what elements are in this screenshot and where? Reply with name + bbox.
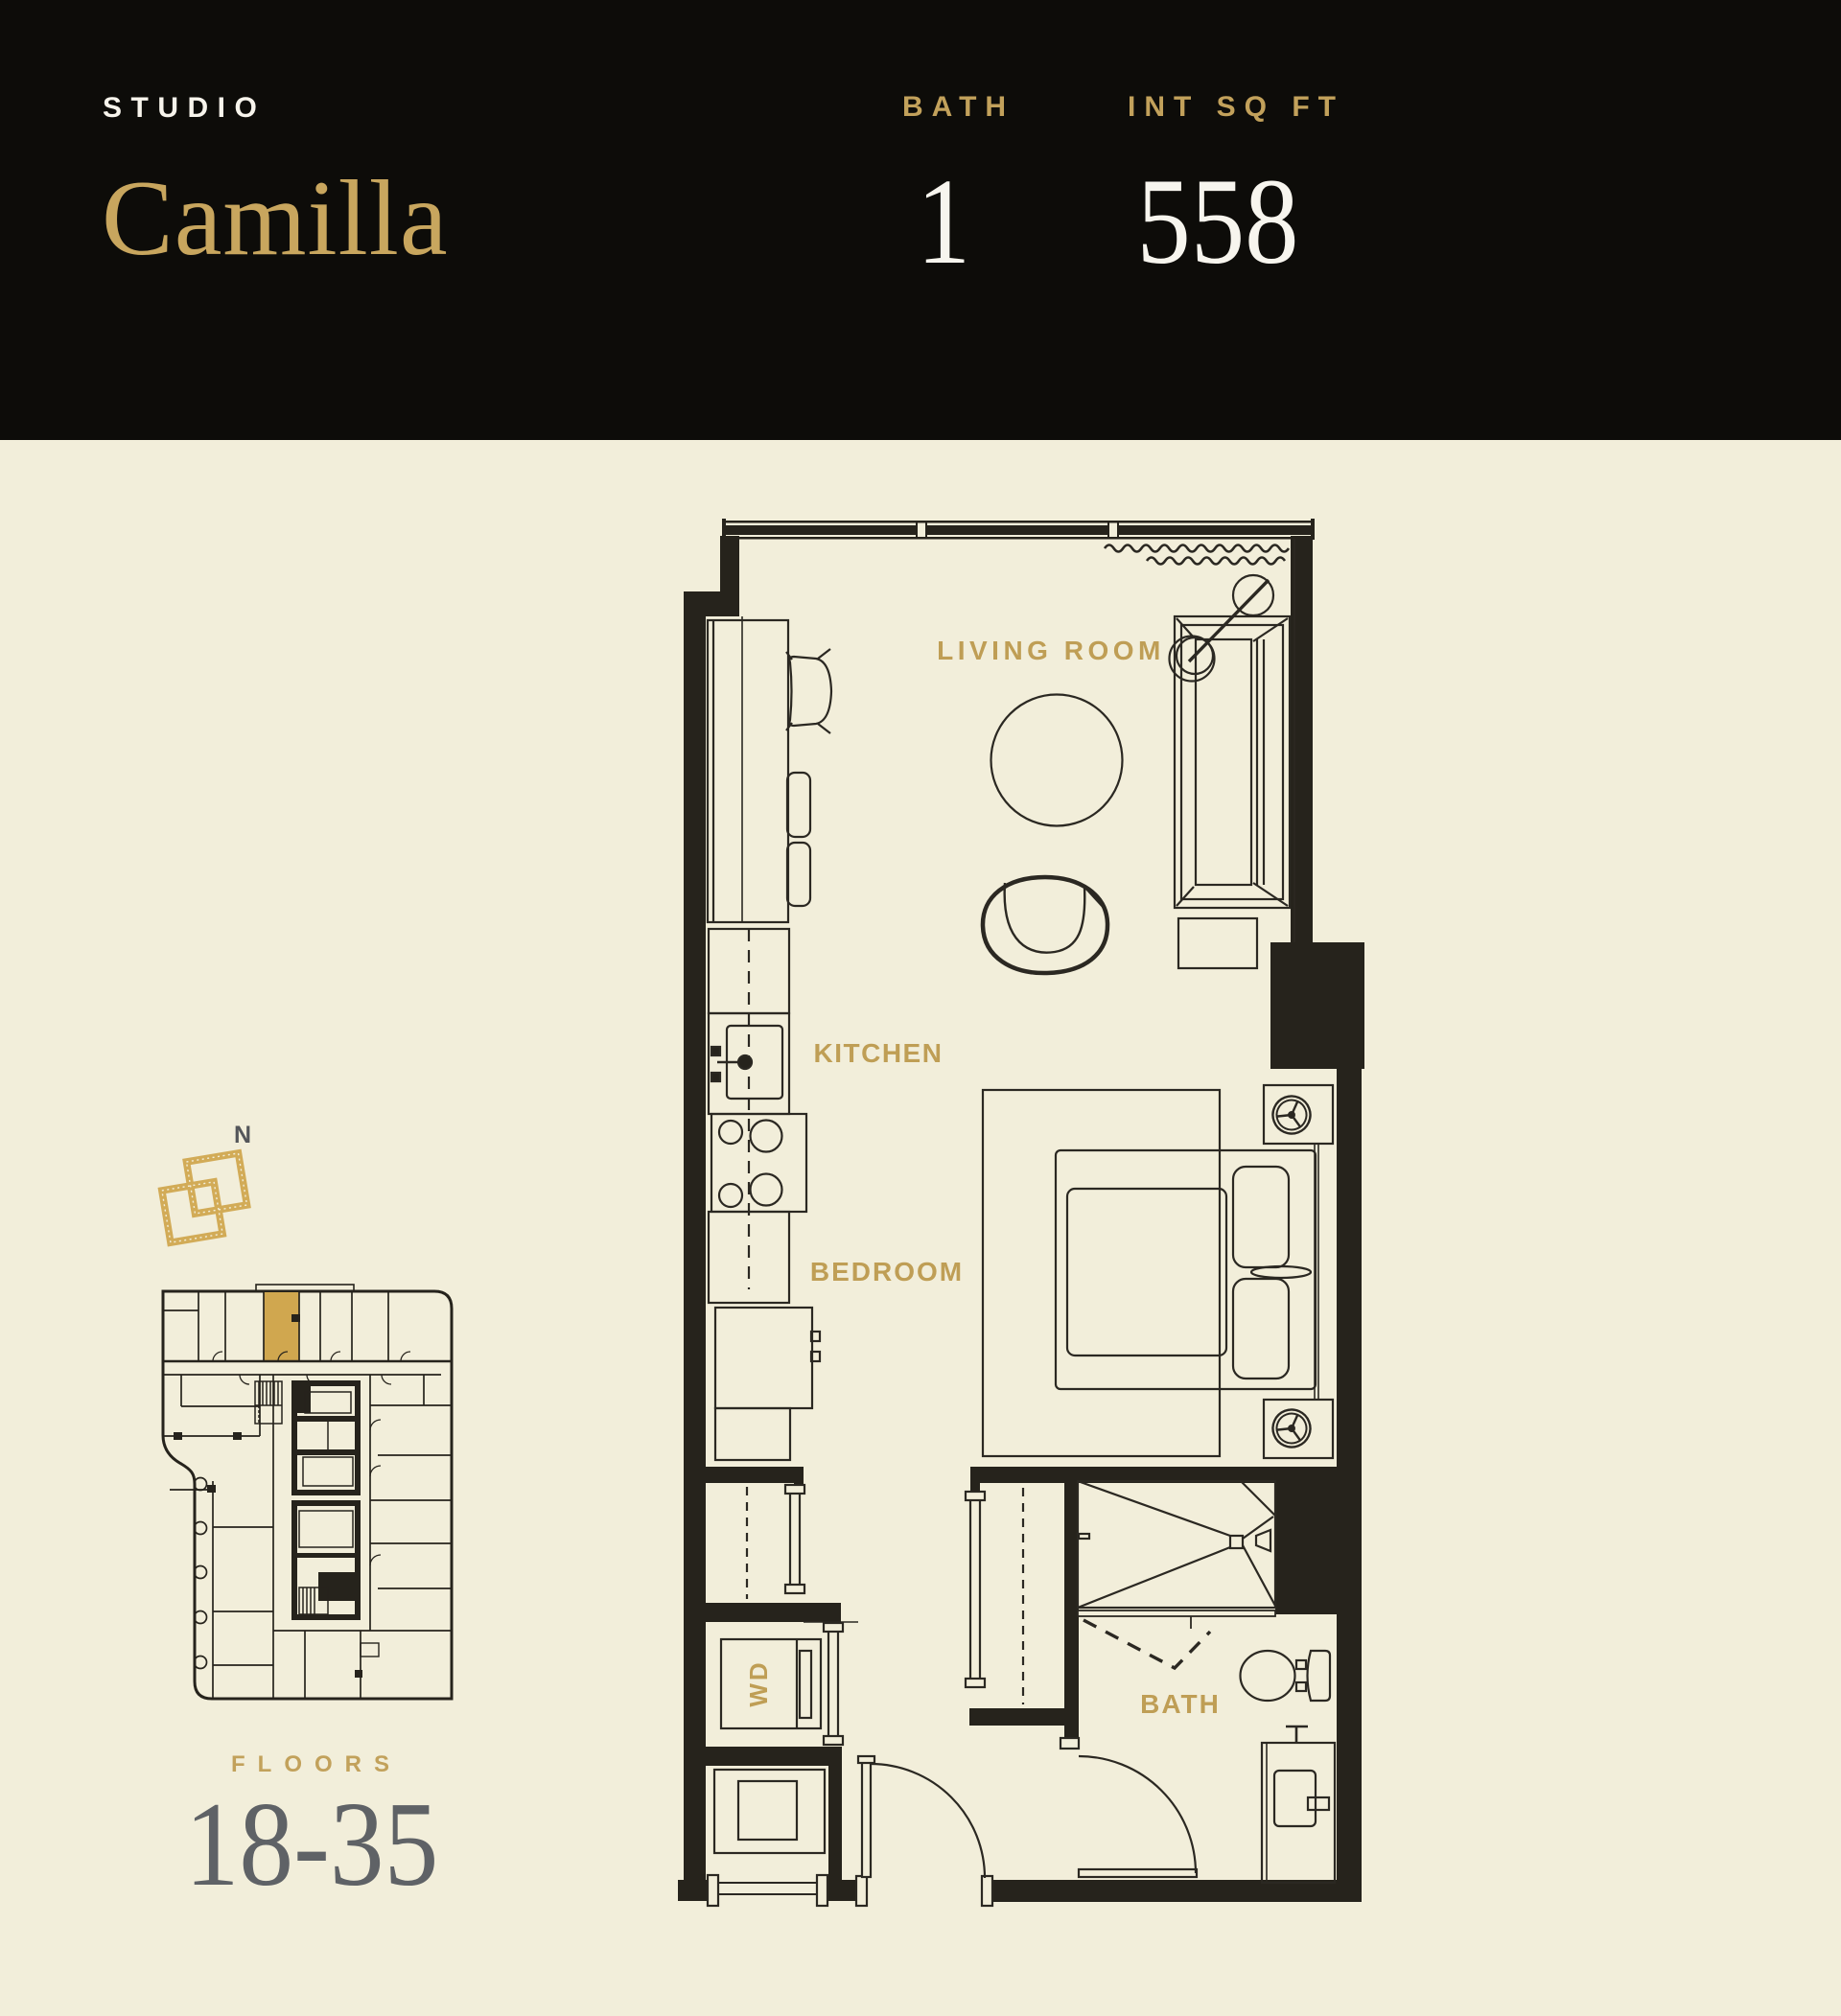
svg-text:N: N [234, 1122, 251, 1148]
svg-text:KITCHEN: KITCHEN [814, 1038, 944, 1068]
svg-text:BATH: BATH [1140, 1689, 1221, 1719]
svg-text:BEDROOM: BEDROOM [810, 1257, 964, 1286]
svg-text:WD: WD [744, 1659, 773, 1706]
svg-text:LIVING ROOM: LIVING ROOM [937, 636, 1165, 665]
